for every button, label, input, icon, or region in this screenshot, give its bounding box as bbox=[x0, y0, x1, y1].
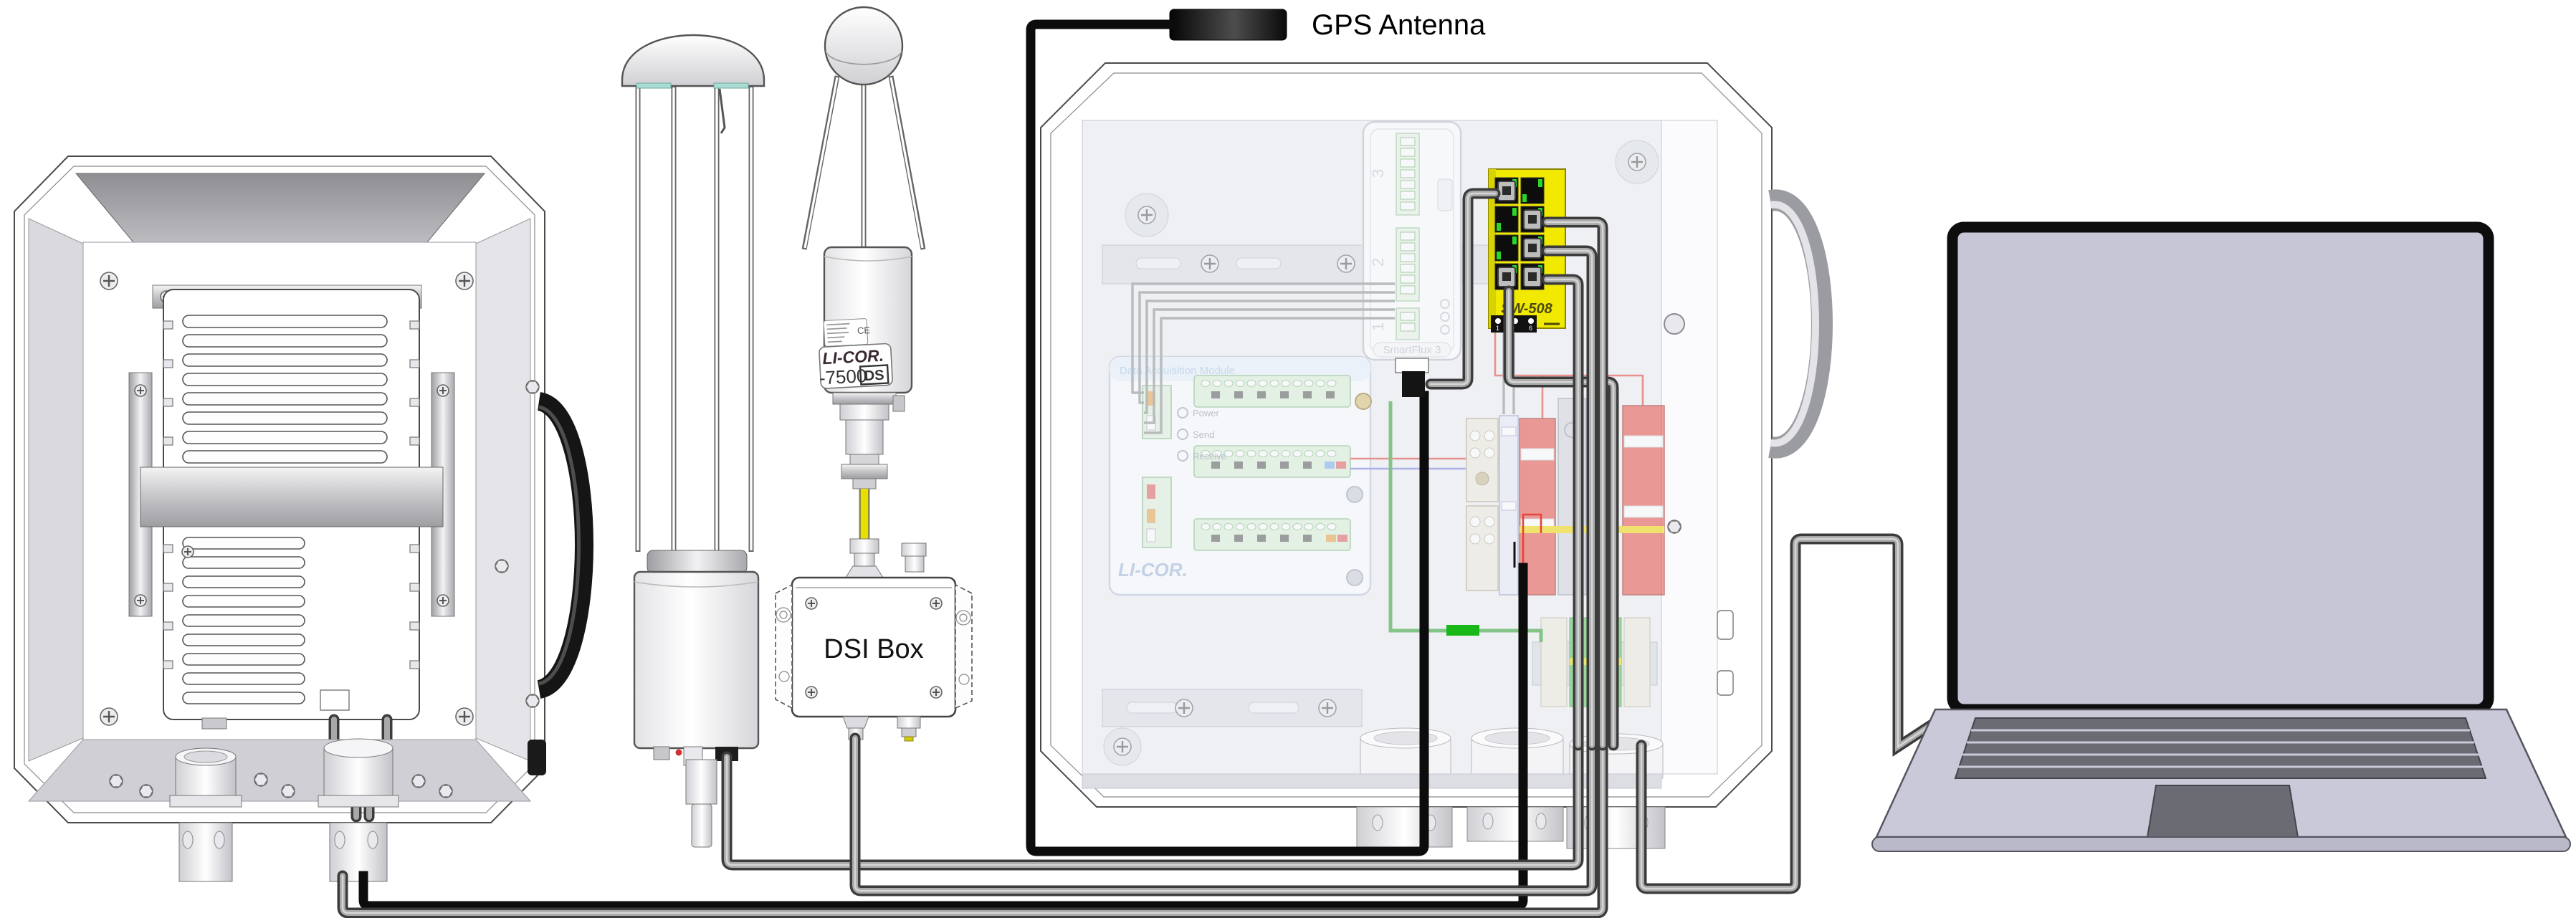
laptop bbox=[1872, 227, 2570, 851]
svg-text:Send: Send bbox=[1193, 429, 1214, 440]
svg-text:DS: DS bbox=[864, 368, 884, 384]
smartflux-module: 3 2 1 SmartFlux 3 bbox=[1363, 122, 1461, 360]
analyzer-top-ball bbox=[825, 7, 902, 85]
finned-electronics-unit bbox=[129, 285, 454, 729]
sonic-probe-pin bbox=[720, 89, 725, 133]
gas-analyzer-li7500ds: CE LI-COR. -7500 DS bbox=[804, 7, 923, 566]
dam-terminal-strips bbox=[1194, 376, 1350, 550]
laptop-screen bbox=[1952, 227, 2489, 709]
laptop-keyboard bbox=[1955, 718, 2486, 778]
laptop-trackpad bbox=[2147, 785, 2298, 837]
svg-text:6: 6 bbox=[1529, 325, 1532, 332]
gps-antenna-puck bbox=[1170, 9, 1287, 40]
left-enclosure-pipes bbox=[179, 823, 387, 881]
enclosure-latch bbox=[528, 740, 546, 775]
gps-antenna-label: GPS Antenna bbox=[1312, 9, 1486, 41]
analyzer-lower-barrel bbox=[833, 393, 905, 489]
door-edge bbox=[1661, 120, 1717, 774]
hinge-tab bbox=[1717, 671, 1733, 695]
svg-text:CE: CE bbox=[857, 325, 871, 336]
analyzer-model-label: LI-COR. -7500 DS bbox=[818, 343, 893, 388]
smartflux-gps-connector bbox=[1402, 371, 1425, 397]
left-enclosure bbox=[14, 156, 584, 881]
hinge-tab bbox=[1717, 611, 1733, 639]
sonic-body bbox=[634, 572, 758, 748]
left-gland bbox=[170, 748, 242, 807]
svg-text:2: 2 bbox=[1369, 258, 1387, 267]
din-rail-lower bbox=[1102, 689, 1362, 727]
svg-text:Power: Power bbox=[1193, 408, 1220, 419]
dam-logo: LI-COR. bbox=[1118, 559, 1188, 580]
laptop-base-lip bbox=[1872, 837, 2570, 851]
sma-connector bbox=[1355, 393, 1371, 409]
sonic-anemometer bbox=[622, 35, 764, 847]
svg-text:LI-COR.: LI-COR. bbox=[822, 346, 884, 368]
svg-text:1: 1 bbox=[1369, 322, 1387, 331]
enclosure-floor bbox=[29, 740, 530, 801]
data-acquisition-module: Data Acquisition Module bbox=[1110, 357, 1370, 595]
main-enclosure-pipes bbox=[1357, 807, 1665, 848]
smartflux-label: SmartFlux 3 bbox=[1383, 344, 1441, 356]
diagram-canvas: CE LI-COR. -7500 DS bbox=[0, 0, 2576, 918]
dsi-top-connectors bbox=[846, 539, 926, 578]
dsi-box: DSI Box bbox=[776, 539, 972, 741]
right-gland bbox=[318, 739, 399, 807]
sonic-dome bbox=[622, 35, 764, 86]
analyzer-spec-label: CE bbox=[824, 318, 871, 346]
ground-wire-bright bbox=[1446, 625, 1479, 636]
dsi-box-label: DSI Box bbox=[824, 634, 923, 664]
door-knob bbox=[1664, 314, 1684, 334]
main-enclosure: 3 2 1 SmartFlux 3 Data Acquisition Modul… bbox=[1041, 63, 1822, 848]
sonic-mounting-tube bbox=[692, 804, 712, 847]
svg-text:3: 3 bbox=[1369, 169, 1387, 178]
gps-antenna: GPS Antenna bbox=[1170, 9, 1486, 41]
svg-text:1: 1 bbox=[1496, 325, 1499, 332]
mounting-band bbox=[140, 467, 443, 527]
svg-text:Receive: Receive bbox=[1193, 451, 1226, 462]
